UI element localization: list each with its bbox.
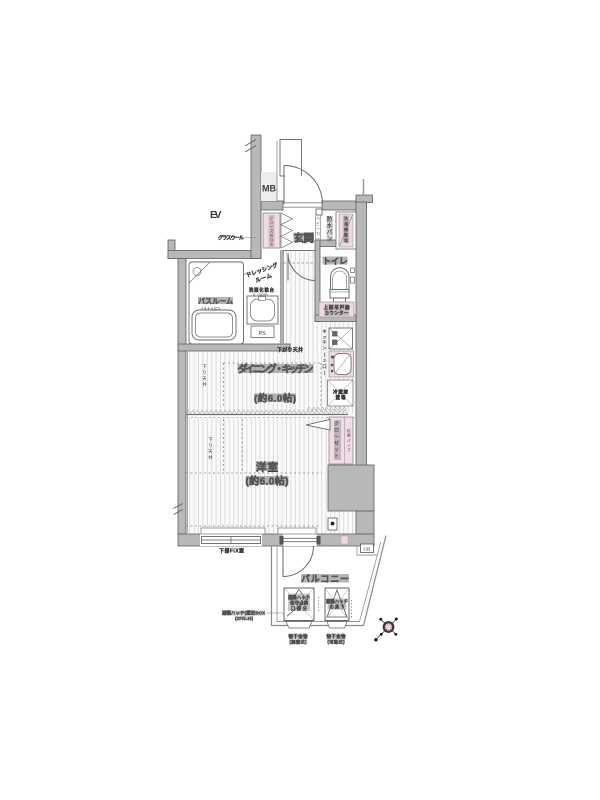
svg-text:MB: MB xyxy=(262,184,277,194)
svg-text:下り天井: 下り天井 xyxy=(208,437,213,461)
svg-text:下部FIX窓: 下部FIX窓 xyxy=(219,548,244,555)
svg-text:PS: PS xyxy=(259,331,267,337)
svg-text:枕棚パイプ: 枕棚パイプ xyxy=(347,428,351,452)
svg-text:ベビーカー: ベビーカー xyxy=(316,217,320,241)
svg-text:下り天井: 下り天井 xyxy=(202,364,207,388)
svg-text:置場: 置場 xyxy=(336,394,346,401)
svg-text:グラスウール: グラスウール xyxy=(218,235,244,242)
svg-text:CB: CB xyxy=(364,547,371,553)
svg-text:EV: EV xyxy=(210,209,222,221)
svg-text:下がり天井: 下がり天井 xyxy=(277,347,303,354)
